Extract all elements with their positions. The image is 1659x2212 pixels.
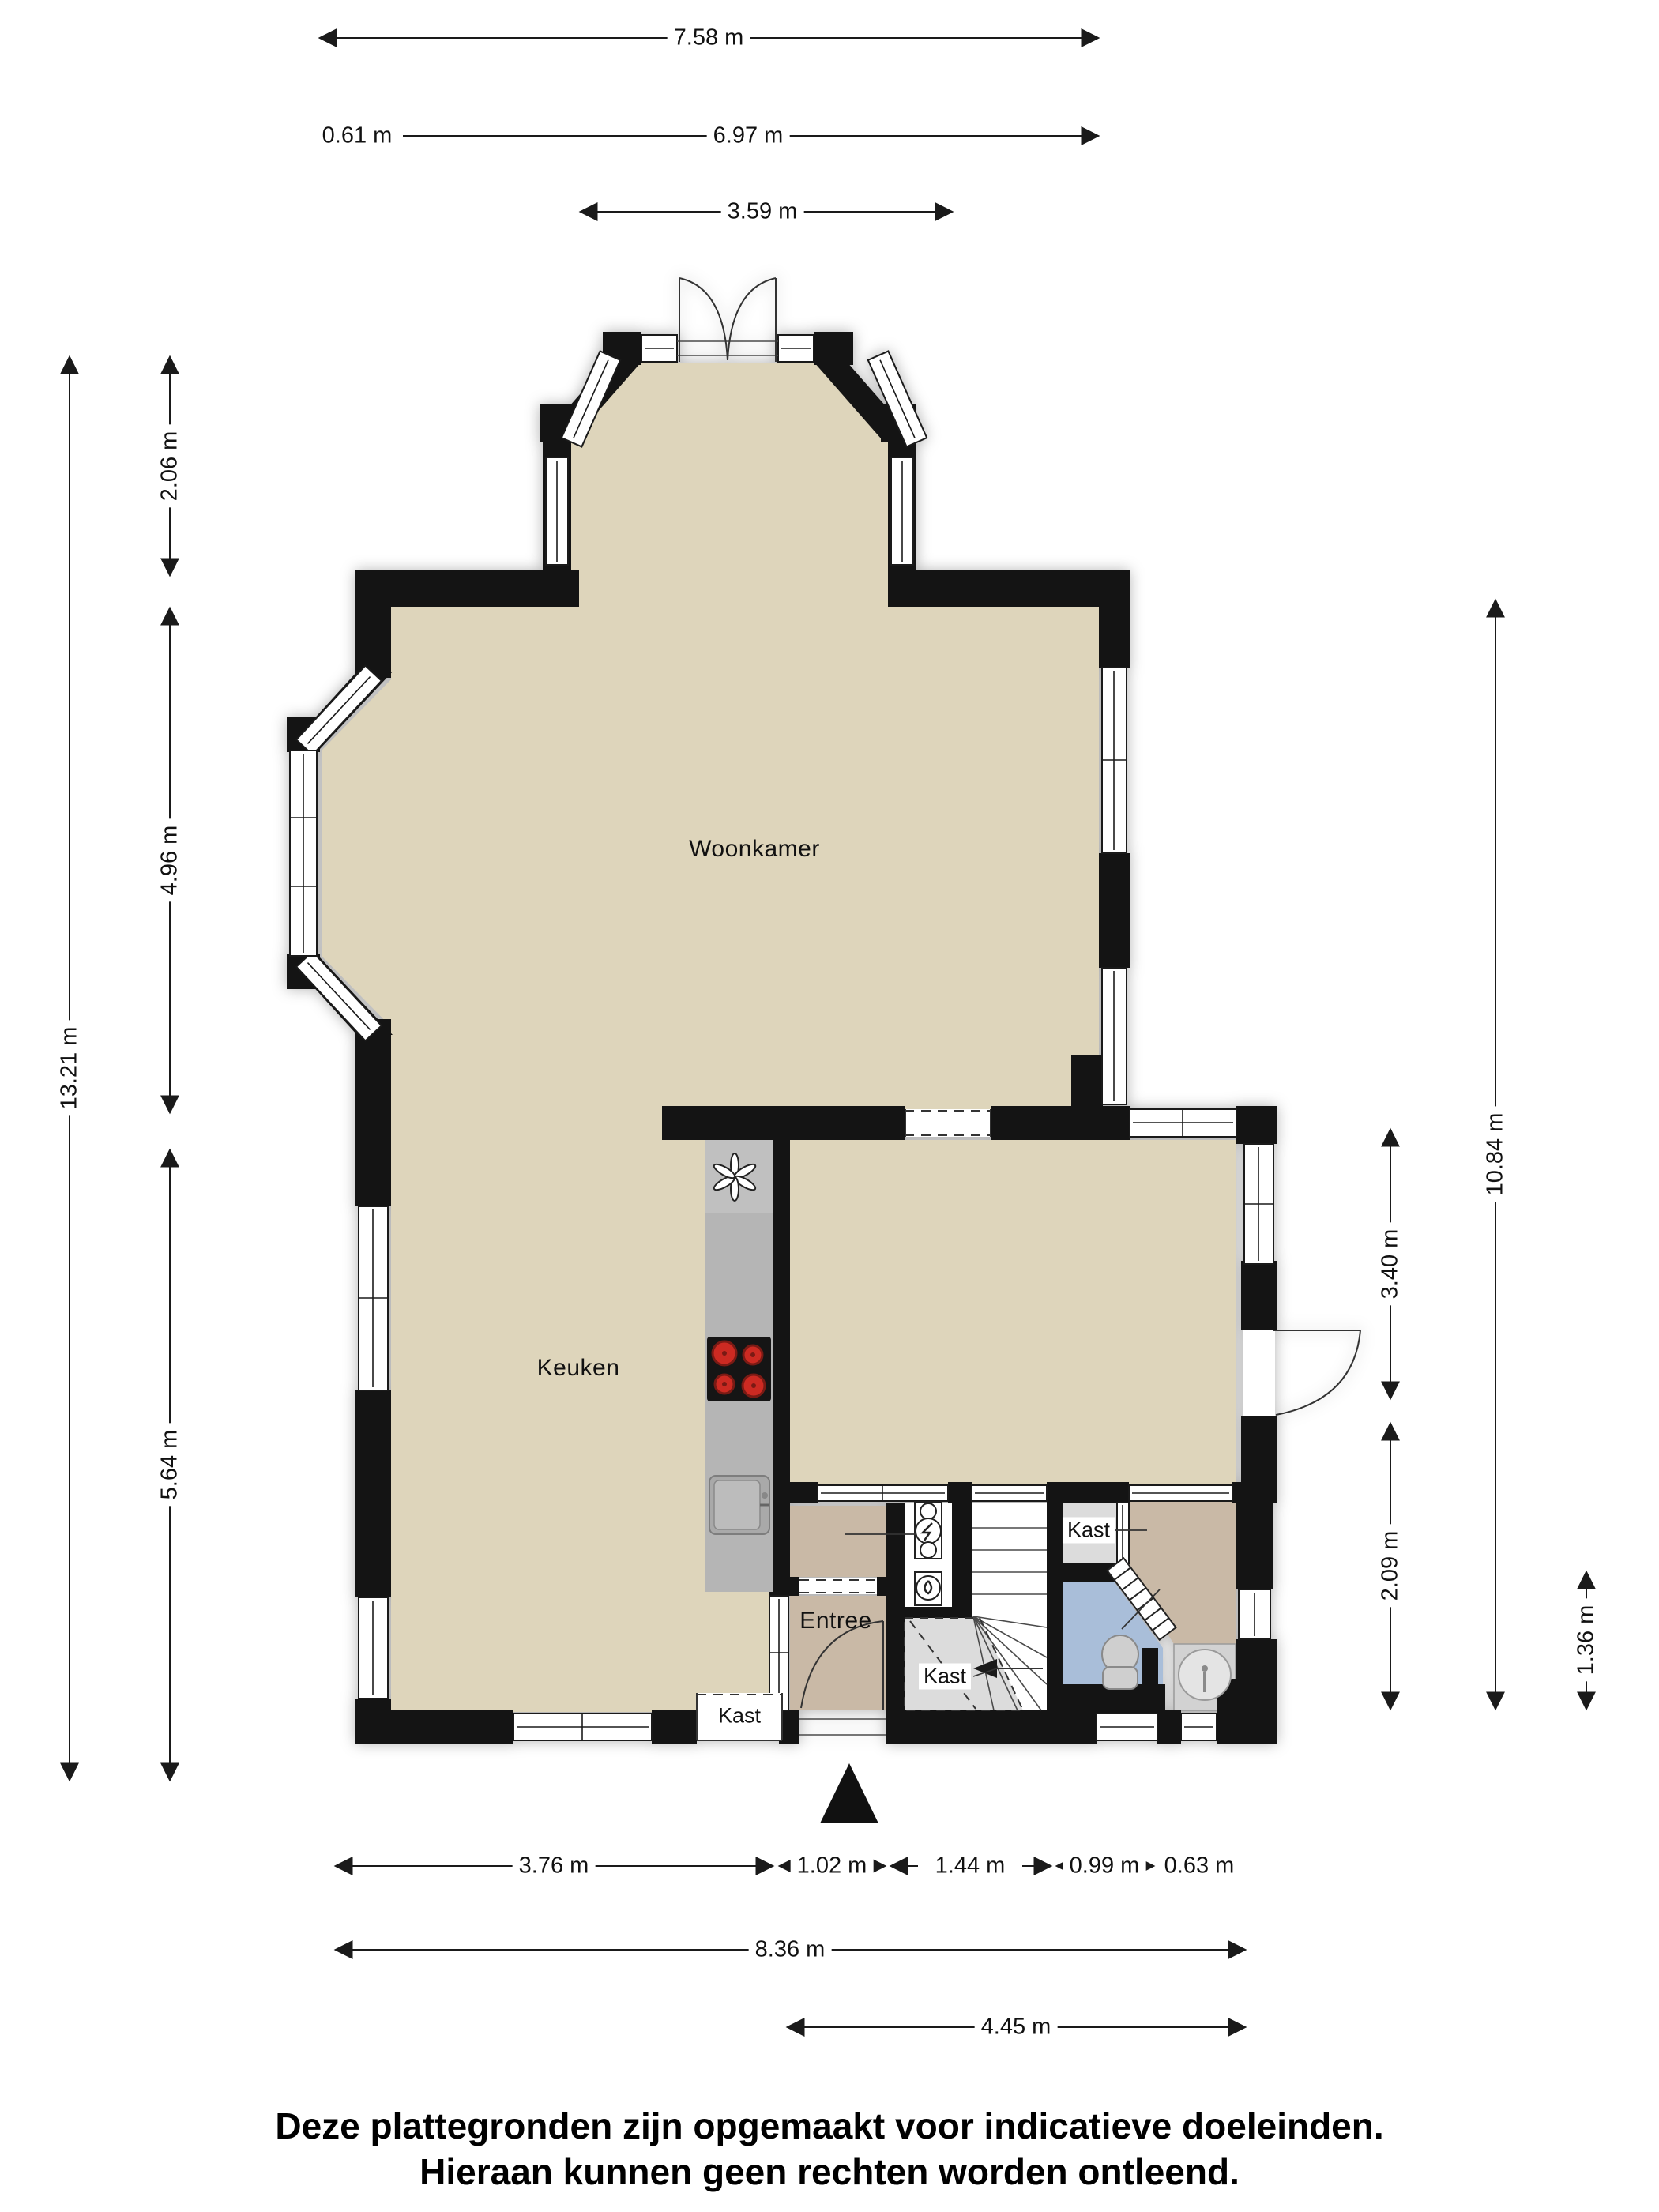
- dim-bottom-144: 1.44 m: [929, 1853, 1012, 1879]
- interior-opening: [799, 1578, 877, 1594]
- dim-right-136: 1.36 m: [1573, 1599, 1599, 1682]
- dim-bottom-445: 4.45 m: [975, 2014, 1058, 2040]
- dim-top-359: 3.59 m: [721, 198, 804, 224]
- dim-bottom-099: 0.99 m: [1063, 1853, 1146, 1879]
- dim-bottom-063: 0.63 m: [1158, 1853, 1241, 1879]
- dim-left-1321: 13.21 m: [56, 1021, 82, 1116]
- meter-cupboard: [915, 1502, 942, 1605]
- floorplan-page: Woonkamer Keuken Entree Kast Kast Kast 7…: [0, 0, 1659, 2212]
- building: [287, 278, 1360, 1744]
- dim-top-758: 7.58 m: [668, 24, 750, 51]
- dim-bottom-102: 1.02 m: [791, 1853, 874, 1879]
- dim-left-496: 4.96 m: [156, 819, 182, 902]
- room-label-woonkamer: Woonkamer: [689, 836, 820, 863]
- room-label-kast-stairs: Kast: [919, 1663, 971, 1689]
- dim-right-340: 3.40 m: [1377, 1223, 1403, 1306]
- floorplan-drawing: [0, 0, 1659, 2212]
- room-label-kast-upper: Kast: [1063, 1517, 1115, 1543]
- dim-top-697: 6.97 m: [707, 122, 790, 149]
- dim-right-209: 2.09 m: [1377, 1525, 1403, 1608]
- water-meter-icon: [916, 1576, 940, 1600]
- room-label-kast-bottom: Kast: [713, 1702, 766, 1729]
- north-arrow-icon: [820, 1763, 878, 1823]
- dim-top-061: 0.61 m: [316, 122, 399, 149]
- french-doors: [679, 278, 776, 362]
- room-label-entree: Entree: [799, 1608, 871, 1635]
- dim-bottom-376: 3.76 m: [513, 1853, 596, 1879]
- interior-opening: [905, 1109, 991, 1137]
- kitchen-counter: [705, 1140, 773, 1592]
- dim-bottom-836: 8.36 m: [749, 1936, 832, 1962]
- dim-left-206: 2.06 m: [156, 425, 182, 508]
- hob-icon: [707, 1337, 771, 1401]
- shower-icon: [1179, 1650, 1231, 1700]
- sink-icon: [709, 1476, 769, 1534]
- disclaimer-line-1: Deze plattegronden zijn opgemaakt voor i…: [0, 2105, 1659, 2147]
- disclaimer-line-2: Hieraan kunnen geen rechten worden ontle…: [0, 2150, 1659, 2193]
- toilet-icon: [1102, 1635, 1138, 1689]
- dim-left-564: 5.64 m: [156, 1424, 182, 1507]
- dim-right-1084: 10.84 m: [1482, 1107, 1508, 1202]
- room-label-keuken: Keuken: [537, 1355, 620, 1382]
- side-door-swing: [1273, 1330, 1360, 1415]
